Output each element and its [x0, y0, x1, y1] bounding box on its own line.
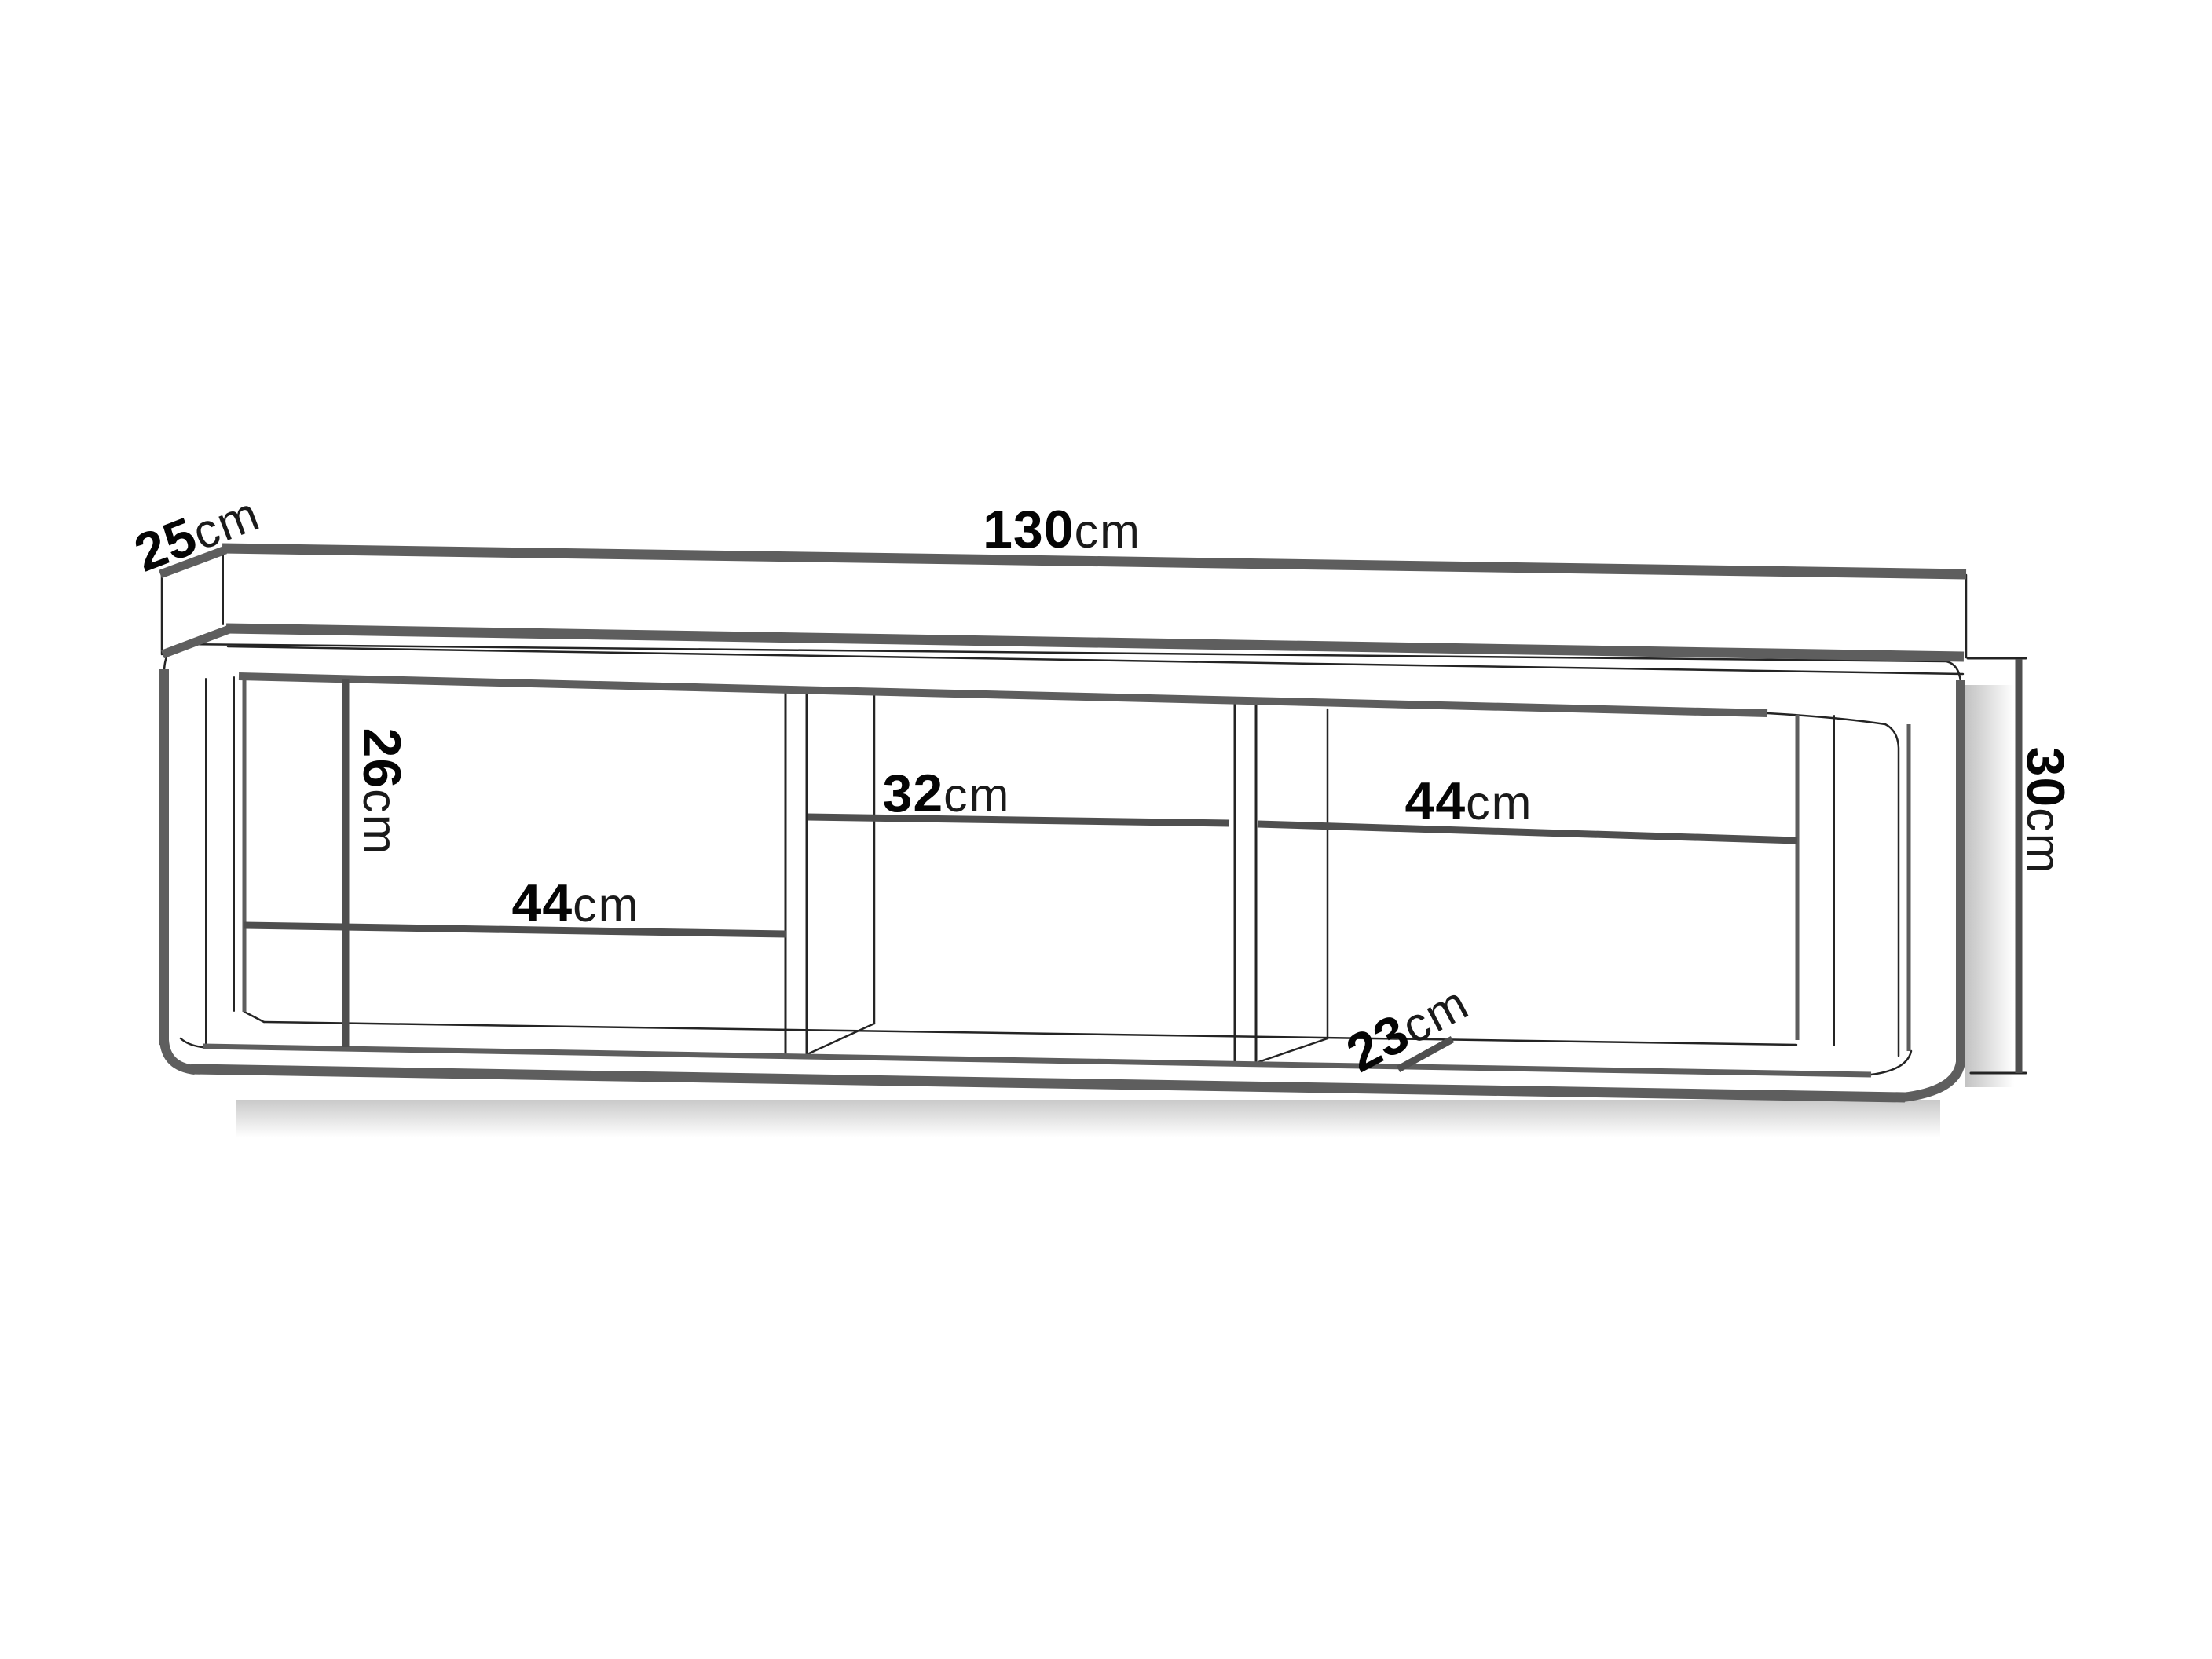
- dim-middle-compartment-value: 32: [883, 764, 944, 823]
- dim-line-middle-compartment: [808, 817, 1229, 823]
- dim-width-total-value: 130: [983, 500, 1074, 559]
- dim-width-total-unit: cm: [1075, 504, 1141, 558]
- dimension-lines: [244, 659, 2019, 1073]
- dim-height-total-label: 30cm: [2019, 747, 2072, 875]
- dim-width-total-label: 130cm: [983, 503, 1141, 556]
- dim-right-compartment-value: 44: [1405, 771, 1467, 831]
- dim-middle-compartment-label: 32cm: [883, 767, 1011, 820]
- dim-right-compartment-label: 44cm: [1405, 775, 1533, 828]
- dim-height-interior-label: 26cm: [355, 728, 408, 856]
- dim-height-interior-value: 26: [352, 728, 412, 789]
- dim-left-compartment-unit: cm: [573, 878, 639, 932]
- dim-height-interior-unit: cm: [353, 789, 407, 855]
- dim-height-total-unit: cm: [2017, 808, 2071, 874]
- dimension-diagram-page: 25cm 130cm 30cm 26cm 44cm 32cm 44cm 23cm: [0, 0, 2212, 1659]
- cabinet-line-drawing: [0, 0, 2212, 1659]
- dim-left-compartment-label: 44cm: [512, 877, 640, 930]
- dim-right-compartment-unit: cm: [1466, 776, 1533, 829]
- dim-middle-compartment-unit: cm: [943, 768, 1010, 822]
- dim-height-total-value: 30: [2016, 747, 2075, 808]
- dim-left-compartment-value: 44: [512, 873, 573, 933]
